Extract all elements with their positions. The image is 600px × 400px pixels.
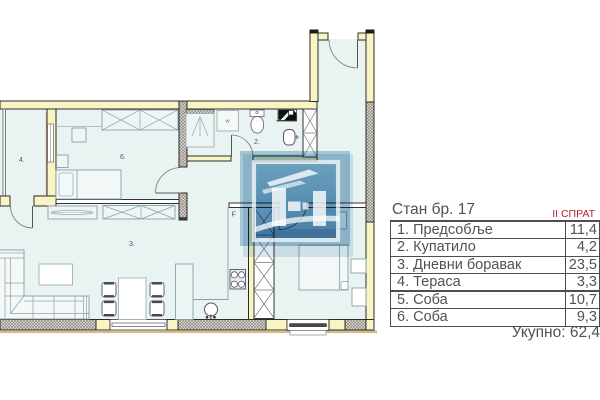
svg-text:4.: 4. bbox=[19, 157, 25, 164]
svg-text:3.: 3. bbox=[129, 241, 135, 248]
svg-text:2.: 2. bbox=[254, 139, 260, 146]
svg-text:6.: 6. bbox=[120, 154, 126, 161]
svg-text:F: F bbox=[232, 212, 236, 219]
